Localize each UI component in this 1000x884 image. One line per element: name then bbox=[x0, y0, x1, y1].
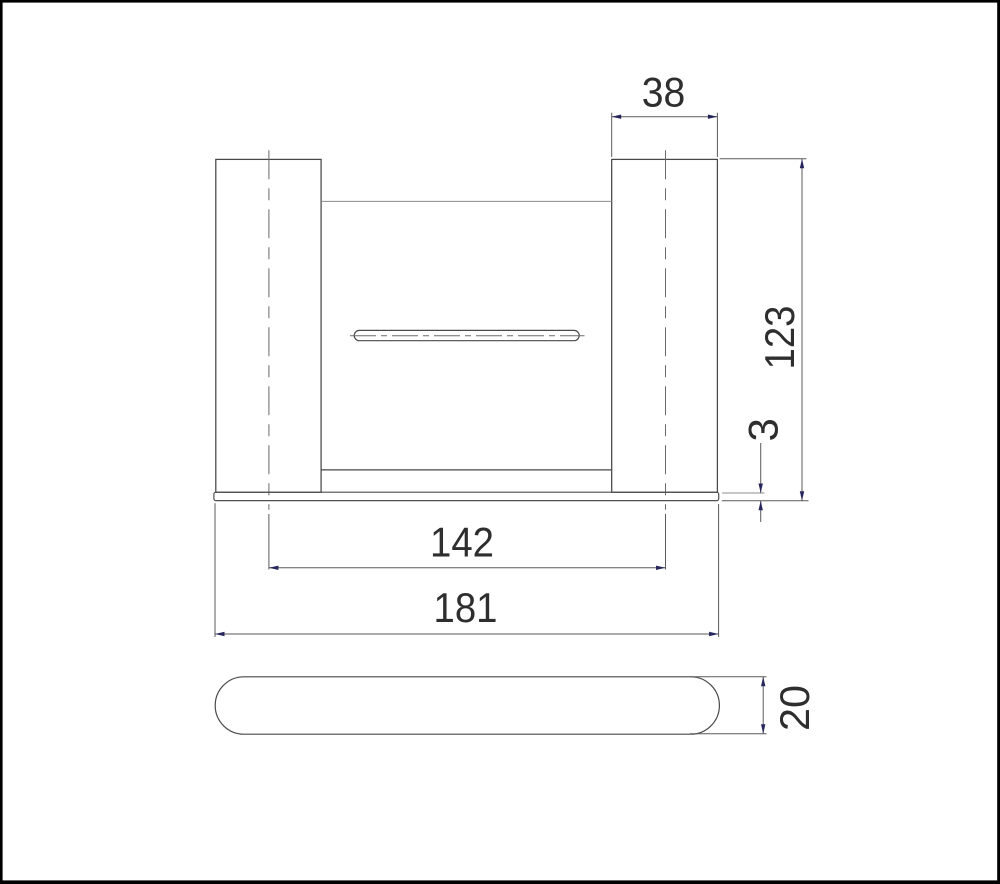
svg-text:142: 142 bbox=[430, 518, 494, 565]
svg-text:181: 181 bbox=[434, 584, 498, 631]
svg-text:20: 20 bbox=[771, 685, 818, 731]
svg-text:38: 38 bbox=[642, 69, 686, 116]
svg-text:123: 123 bbox=[756, 306, 803, 370]
svg-text:3: 3 bbox=[740, 418, 787, 441]
